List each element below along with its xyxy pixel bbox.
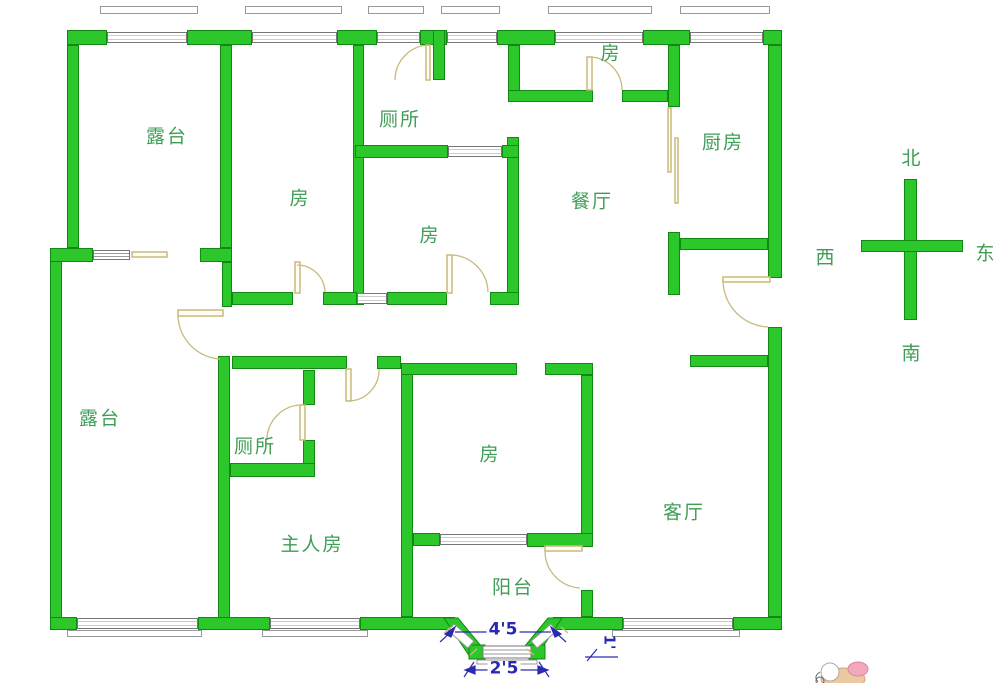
door-leaf [300,405,305,440]
door-leaf [132,252,167,257]
wall [490,292,519,305]
window [447,32,497,43]
compass-cross-horizontal [861,240,963,252]
wall [581,590,593,617]
wall [232,356,347,369]
window [252,32,337,43]
wall [67,30,107,45]
sliding-door-leaf [675,138,678,203]
wall [303,370,315,405]
wall [230,463,315,477]
wall [67,45,79,248]
wall [502,145,519,158]
window [377,32,420,43]
wall [218,356,230,618]
door-leaf [346,369,351,401]
door-arc [297,265,325,292]
window [555,32,643,43]
window-sill [245,6,342,14]
wall [50,248,62,630]
wall [222,262,232,307]
window-sill [441,6,500,14]
wall [553,617,623,630]
window [107,32,187,43]
room-label-terrace-lower: 露台 [79,404,121,431]
watermark-logo [816,662,868,683]
window [440,534,527,545]
watermark-curl [816,677,824,683]
room-label-balcony: 阳台 [492,573,534,600]
wall [507,137,519,305]
room-label-room-upper-left: 房 [289,184,310,211]
wall [690,355,768,367]
watermark-curl [816,672,820,682]
wall [198,617,270,630]
window [77,618,198,629]
wall [668,232,680,295]
wall [545,363,593,375]
wall [353,45,364,305]
door-leaf [426,45,430,80]
bay-center-window [483,646,531,658]
dimension-side-depth: 1' [602,632,617,651]
door-leaf [723,277,770,282]
door-arc [348,369,379,401]
window-sill [67,630,202,637]
room-label-toilet-lower: 厕所 [234,432,276,459]
wall [360,617,455,630]
room-label-room-middle: 房 [419,221,440,248]
sliding-door-leaf [668,108,671,172]
wall [733,617,782,630]
wall [768,45,782,278]
room-label-room-bottom: 房 [479,440,500,467]
window [357,293,387,304]
wall [497,30,555,45]
dimension-bay-width: 4'5 [487,622,520,639]
wall [433,30,445,80]
window [623,618,733,629]
wall [668,45,680,107]
compass-west-label: 西 [815,243,836,270]
room-label-living: 客厅 [663,498,705,525]
wall [413,533,440,546]
window [270,618,360,629]
dim-line [440,630,453,642]
wall [187,30,252,45]
wall [377,356,401,369]
watermark-body [821,668,865,683]
window-sill [680,6,770,14]
wall [337,30,377,45]
window-sill [548,6,652,14]
dim-tick [464,662,474,677]
dim-arrow [465,666,475,674]
wall [401,363,413,617]
wall [387,292,447,305]
wall [50,617,77,630]
wall [200,248,232,262]
bay-pier [469,645,485,659]
window-sill [100,6,198,14]
wall [508,90,593,102]
room-label-terrace-upper: 露台 [146,122,188,149]
door-arc [545,551,580,588]
wall [323,292,357,305]
wall [401,363,517,375]
wall [355,145,448,158]
wall [680,238,768,250]
room-label-kitchen: 厨房 [702,128,744,155]
watermark-ear [848,662,868,676]
tick [470,649,477,655]
wall [581,375,593,547]
floor-plan-canvas: 露台 房 厕所 房 房 餐厅 厨房 露台 厕所 主人房 房 阳台 客厅 北 西 … [0,0,1000,683]
dimension-lines [440,627,618,677]
dim-arrow [538,666,548,674]
window [448,146,502,157]
room-label-dining: 餐厅 [571,187,613,214]
watermark-head [821,663,839,681]
wall [643,30,690,45]
dim-tick [587,649,597,661]
door-leaf [178,310,223,316]
wall [763,30,782,45]
window-sill [612,630,740,637]
wall [768,327,782,617]
window-sill [262,630,368,637]
room-label-room-top-right: 房 [600,39,621,66]
door-leaf [447,255,452,293]
wall [622,90,668,102]
tick [527,649,534,655]
door-leaf [587,57,592,90]
compass-north-label: 北 [901,144,922,171]
compass-south-label: 南 [901,339,922,366]
room-label-toilet-upper: 厕所 [379,105,421,132]
window [93,250,130,260]
room-label-master: 主人房 [280,530,343,557]
window [690,32,763,43]
door-arc [178,316,220,359]
door-arc [395,45,430,80]
dim-line [553,630,566,642]
door-leaf [295,262,300,293]
wall [220,45,232,248]
wall [50,248,93,262]
bay-pier [529,645,545,659]
dim-tick [539,662,549,677]
dimension-bay-window-width: 2'5 [488,661,521,678]
wall [527,533,593,547]
door-arc [723,281,768,327]
wall [232,292,293,305]
door-arc [450,255,488,292]
compass-east-label: 东 [975,239,996,266]
window-sill [368,6,424,14]
wall [508,45,520,93]
